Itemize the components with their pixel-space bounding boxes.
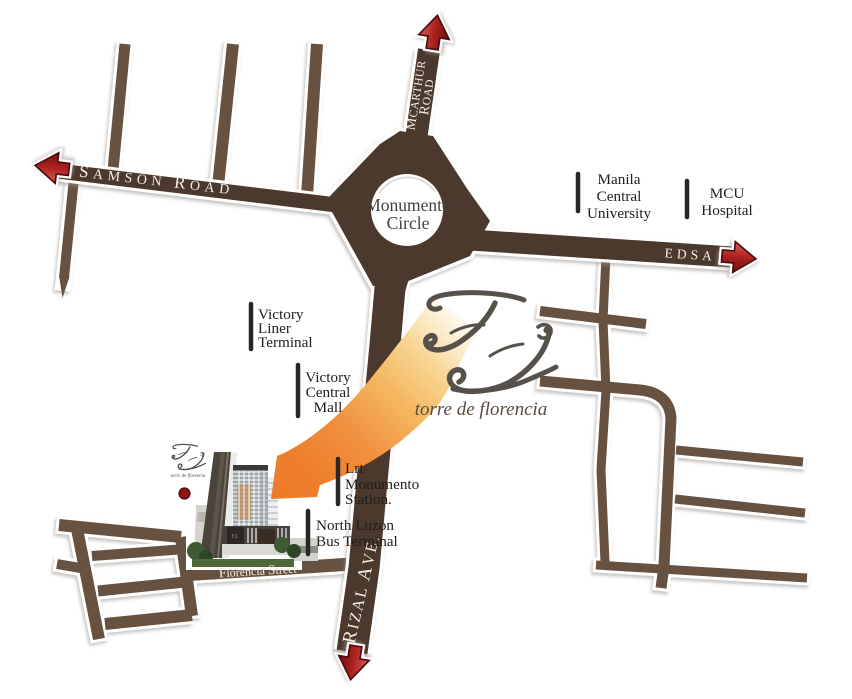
svg-text:torre de florencia: torre de florencia [415, 399, 548, 420]
svg-text:Circle: Circle [387, 213, 430, 233]
svg-text:torre de florencia: torre de florencia [171, 474, 206, 479]
svg-text:Bus Terminal: Bus Terminal [316, 533, 398, 550]
svg-text:Mall: Mall [314, 399, 343, 416]
svg-text:MCU: MCU [710, 185, 745, 202]
svg-text:FL: FL [230, 534, 239, 540]
svg-text:North Luzon: North Luzon [316, 517, 394, 534]
svg-text:University: University [587, 205, 652, 222]
svg-text:Station.: Station. [345, 491, 392, 508]
svg-text:Monumento: Monumento [365, 195, 451, 215]
svg-text:Central: Central [597, 188, 642, 205]
svg-text:Manila: Manila [597, 171, 640, 188]
svg-text:Lrt: Lrt [345, 460, 364, 477]
svg-text:Hospital: Hospital [701, 202, 752, 219]
svg-text:Terminal: Terminal [258, 334, 313, 351]
